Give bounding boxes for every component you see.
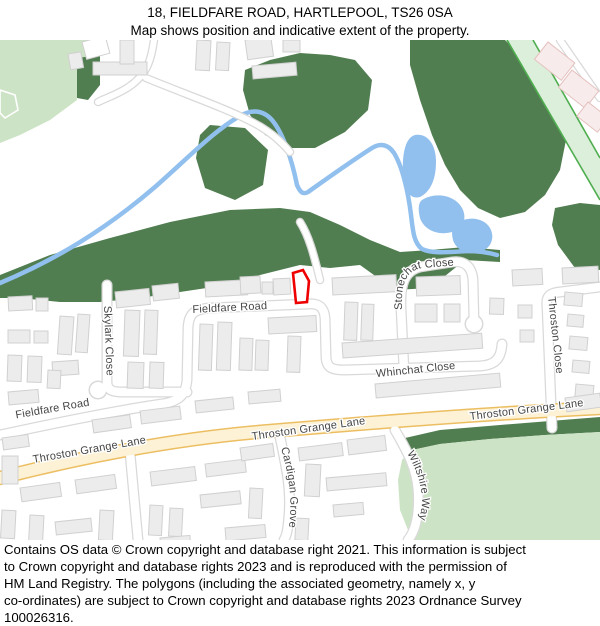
building — [361, 304, 374, 340]
building — [47, 370, 61, 389]
building — [283, 40, 300, 52]
building — [216, 322, 232, 370]
building — [57, 316, 74, 355]
property-outline — [293, 270, 309, 303]
building — [98, 510, 114, 540]
copyright-line: Contains OS data © Crown copyright and d… — [4, 541, 600, 558]
building — [152, 283, 179, 301]
building — [2, 456, 18, 484]
building — [123, 310, 140, 356]
building — [195, 40, 211, 71]
building — [273, 278, 291, 295]
building — [567, 314, 584, 327]
building — [169, 508, 183, 537]
building — [298, 443, 343, 461]
building — [245, 40, 274, 60]
building — [287, 336, 301, 372]
building — [55, 518, 92, 535]
building — [569, 336, 588, 351]
copyright-line: HM Land Registry. The polygons (includin… — [4, 575, 600, 592]
building — [34, 331, 48, 343]
building — [518, 305, 532, 318]
building — [149, 362, 164, 388]
building — [7, 355, 22, 381]
woodland — [196, 125, 268, 200]
building — [332, 275, 397, 295]
building — [200, 491, 241, 508]
building — [416, 275, 461, 296]
building — [512, 268, 543, 286]
building — [150, 467, 196, 486]
title-subtitle: Map shows position and indicative extent… — [0, 20, 600, 38]
building — [255, 340, 269, 370]
building — [127, 362, 144, 389]
building — [36, 298, 48, 311]
building — [8, 389, 39, 405]
building — [82, 40, 110, 59]
building — [333, 502, 364, 517]
building — [225, 525, 266, 540]
building — [520, 330, 534, 342]
map: Fieldfare Road Fieldfare Road Whinchat C… — [0, 40, 600, 540]
building — [27, 356, 42, 382]
building — [240, 443, 274, 460]
building — [8, 296, 33, 311]
building — [564, 292, 583, 307]
copyright-line: 100026316. — [4, 609, 600, 626]
building — [248, 389, 281, 404]
building — [120, 40, 134, 64]
building — [148, 505, 163, 536]
building — [326, 473, 387, 491]
street-label-fieldfare-road-upper: Fieldfare Road — [192, 300, 267, 316]
building — [143, 310, 158, 354]
building — [562, 266, 599, 284]
building — [198, 324, 213, 370]
building — [248, 488, 263, 519]
building — [304, 464, 321, 497]
building — [8, 330, 30, 343]
building — [262, 282, 273, 294]
building — [489, 298, 504, 314]
copyright-notice: Contains OS data © Crown copyright and d… — [0, 541, 600, 626]
building — [20, 482, 62, 501]
street-label-cardigan-grove: Cardigan Grove — [278, 446, 299, 529]
building — [415, 304, 437, 322]
building — [75, 474, 117, 493]
woodland — [552, 203, 600, 270]
building — [29, 515, 44, 540]
building — [68, 52, 84, 70]
copyright-line: to Crown copyright and database rights 2… — [4, 558, 600, 575]
title-address: 18, FIELDFARE ROAD, HARTLEPOOL, TS26 0SA — [0, 0, 600, 20]
building — [344, 302, 358, 340]
building — [239, 338, 253, 370]
map-title: 18, FIELDFARE ROAD, HARTLEPOOL, TS26 0SA… — [0, 0, 600, 40]
copyright-line: co-ordinates) are subject to Crown copyr… — [4, 592, 600, 609]
pond — [403, 135, 436, 198]
map-canvas: Fieldfare Road Fieldfare Road Whinchat C… — [0, 40, 600, 540]
building — [115, 288, 150, 307]
building — [195, 397, 234, 413]
building — [75, 314, 90, 353]
building — [347, 435, 387, 455]
building — [572, 360, 590, 373]
building — [205, 459, 246, 477]
building — [444, 304, 460, 322]
building — [240, 276, 261, 294]
building — [216, 42, 230, 71]
building — [1, 510, 16, 539]
building — [268, 315, 317, 333]
street-label-throston-grange-lane-mid: Throston Grange Lane — [251, 415, 366, 443]
